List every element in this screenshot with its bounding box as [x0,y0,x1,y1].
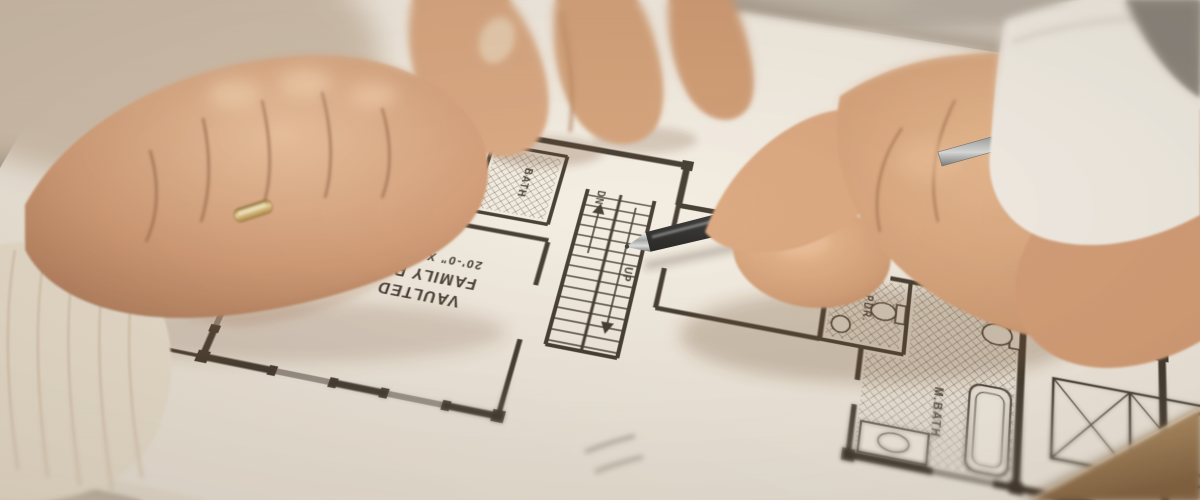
photo-scene: VAULTED FAMILY RM. 20'-0" X 19'-0" DININ… [0,0,1200,500]
knuckle-highlight [348,83,396,109]
knuckle-highlight [209,81,261,109]
shirt-cuff-and-suit [989,0,1200,245]
foreground-layer [0,0,1200,500]
finger-ring [668,0,754,120]
pen-tip-point [625,244,629,248]
table-corner [1020,405,1200,500]
